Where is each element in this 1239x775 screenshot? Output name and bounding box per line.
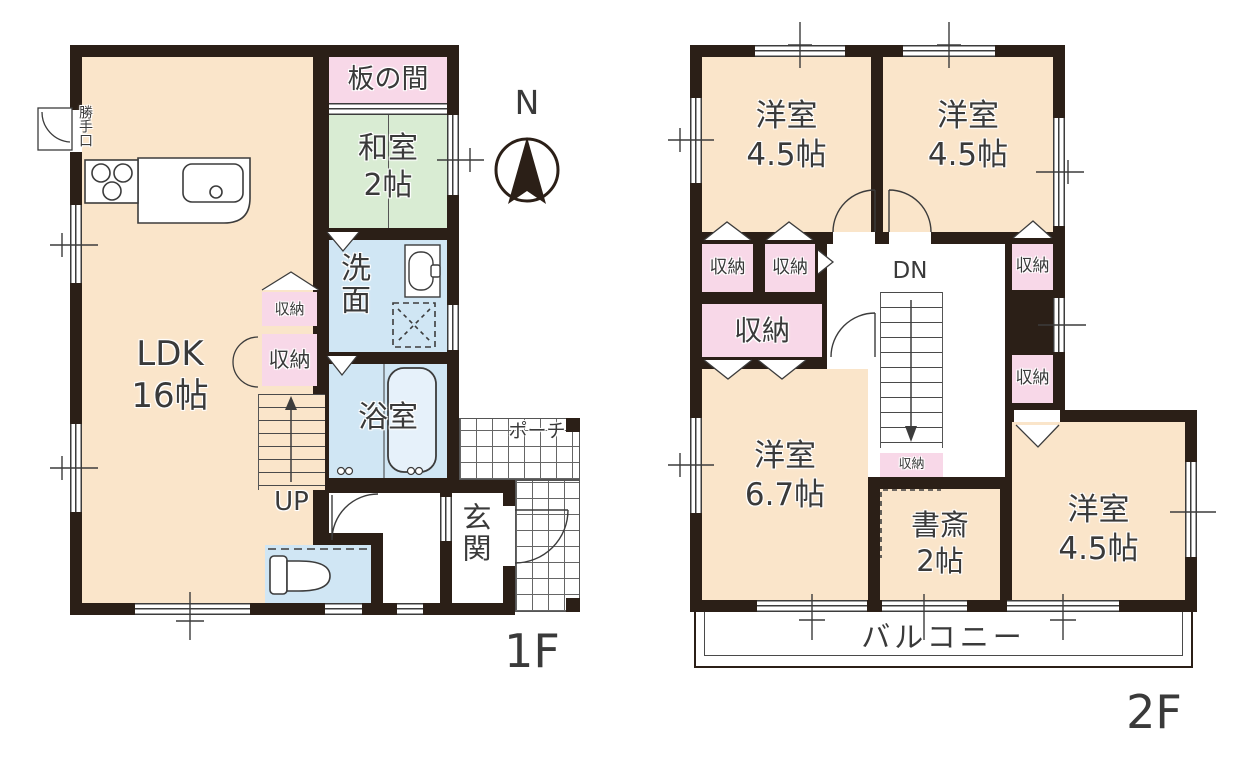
window bbox=[135, 603, 250, 615]
window bbox=[903, 45, 995, 57]
label-study: 書斎2帖 bbox=[880, 500, 1000, 586]
label-closet-f2-e: 収納 bbox=[1012, 357, 1053, 401]
label-bath: 浴室 bbox=[329, 399, 447, 437]
room-ldk bbox=[82, 57, 313, 603]
hall-f1-lower bbox=[383, 533, 440, 603]
door-gap bbox=[1014, 410, 1060, 422]
label-closet-f2-w-large: 収納 bbox=[702, 306, 822, 355]
label-closet-f1-lower: 収納 bbox=[262, 342, 317, 378]
hall-f1-upper bbox=[329, 493, 440, 533]
label-floor2: 2F bbox=[1108, 686, 1200, 740]
label-bedroom-w: 洋室6.7帖 bbox=[702, 428, 868, 523]
sliding-door-itanoma bbox=[329, 103, 447, 115]
window bbox=[690, 98, 702, 183]
window bbox=[447, 115, 459, 195]
label-itanoma: 板の間 bbox=[329, 61, 447, 99]
label-closet-f2-stairs: 収納 bbox=[880, 452, 943, 478]
stairs-f2 bbox=[880, 292, 943, 448]
floor-plan-canvas: N LDK16帖 板の間 和室2帖 洗面 浴室 収納 収納 UP 玄関 ポーチ … bbox=[0, 0, 1239, 775]
window bbox=[70, 424, 82, 512]
label-closet-f2-ne: 収納 bbox=[1012, 246, 1053, 288]
label-closet-f2-nw-right: 収納 bbox=[765, 246, 815, 290]
back-door-icon bbox=[38, 108, 72, 150]
window bbox=[757, 600, 867, 612]
door-gap bbox=[833, 232, 875, 244]
label-genkan: 玄関 bbox=[458, 502, 496, 602]
compass-north-label: N bbox=[505, 84, 549, 122]
stairs-f1 bbox=[258, 394, 325, 490]
window bbox=[70, 205, 82, 283]
window bbox=[447, 305, 459, 350]
room-toilet bbox=[265, 545, 371, 603]
genkan-inner-door bbox=[440, 497, 452, 541]
label-ldk: LDK16帖 bbox=[100, 333, 240, 417]
genkan-door-gap bbox=[503, 506, 515, 566]
door-gap bbox=[889, 232, 931, 244]
window bbox=[1053, 298, 1065, 352]
window bbox=[325, 603, 362, 615]
label-floor1: 1F bbox=[490, 626, 574, 678]
label-senmen: 洗面 bbox=[334, 252, 374, 352]
window bbox=[882, 600, 967, 612]
label-bedroom-se: 洋室4.5帖 bbox=[1012, 482, 1185, 577]
compass-icon bbox=[496, 137, 558, 204]
label-closet-f1-upper: 収納 bbox=[262, 297, 317, 321]
window bbox=[755, 45, 845, 57]
window bbox=[690, 418, 702, 513]
window bbox=[1007, 600, 1119, 612]
label-porch: ポーチ bbox=[492, 420, 582, 444]
label-stairs-up: UP bbox=[258, 487, 325, 517]
window bbox=[1185, 462, 1197, 557]
label-washitsu: 和室2帖 bbox=[329, 130, 447, 204]
label-bedroom-nw: 洋室4.5帖 bbox=[702, 90, 871, 182]
porch-tiles-right bbox=[515, 480, 580, 612]
label-bedroom-ne: 洋室4.5帖 bbox=[883, 90, 1053, 182]
label-balcony: バルコニー bbox=[694, 617, 1193, 657]
label-closet-f2-nw-left: 収納 bbox=[702, 246, 753, 290]
window bbox=[397, 603, 423, 615]
label-stairs-down: DN bbox=[868, 256, 952, 286]
door-gap bbox=[831, 357, 875, 369]
label-back-door: 勝手口 bbox=[75, 105, 95, 173]
window bbox=[1053, 118, 1065, 226]
